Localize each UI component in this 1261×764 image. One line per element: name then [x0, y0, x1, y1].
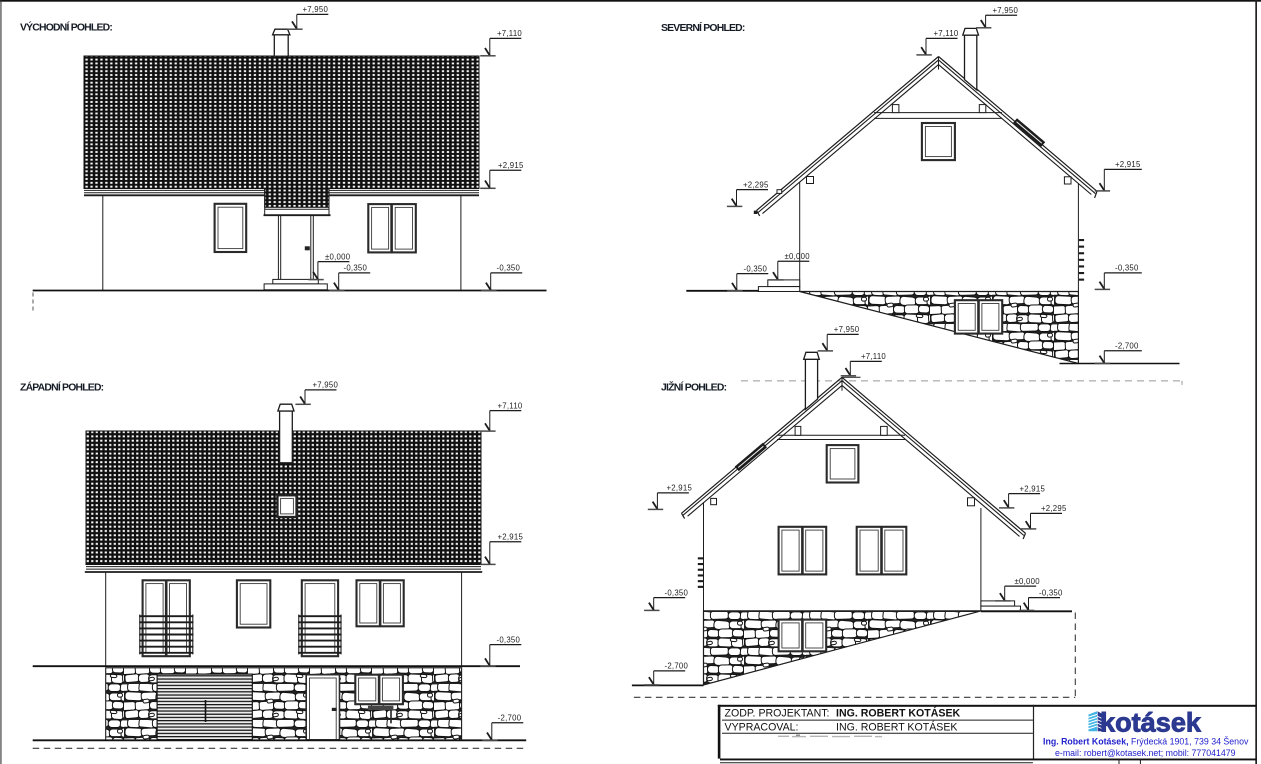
- svg-text:-0,350: -0,350: [497, 635, 521, 644]
- svg-text:+7,950: +7,950: [993, 6, 1019, 15]
- svg-text:+2,915: +2,915: [1115, 160, 1141, 169]
- svg-text:ING. ROBERT KOTÁSEK: ING. ROBERT KOTÁSEK: [836, 720, 957, 733]
- svg-text:-0,350: -0,350: [1039, 588, 1063, 597]
- svg-text:+2,915: +2,915: [667, 484, 693, 493]
- svg-text:±0,000: ±0,000: [785, 252, 811, 261]
- svg-text:-2,700: -2,700: [665, 662, 689, 671]
- svg-text:ZÁPADNÍ POHLED:: ZÁPADNÍ POHLED:: [20, 381, 104, 394]
- svg-text:+7,110: +7,110: [497, 29, 522, 38]
- svg-text:+7,110: +7,110: [861, 352, 886, 361]
- svg-text:-0,350: -0,350: [344, 264, 368, 273]
- svg-text:+7,950: +7,950: [303, 5, 329, 14]
- svg-text:+7,110: +7,110: [934, 29, 959, 38]
- svg-text:e-mail: robert@kotasek.net; mo: e-mail: robert@kotasek.net; mobil: 77704…: [1055, 748, 1236, 758]
- svg-text:+2,295: +2,295: [743, 180, 769, 189]
- svg-text:VYPRACOVAL:: VYPRACOVAL:: [725, 721, 799, 733]
- svg-text:+7,950: +7,950: [313, 381, 339, 390]
- svg-text:+7,110: +7,110: [498, 401, 523, 410]
- svg-text:-0,350: -0,350: [665, 588, 689, 597]
- svg-text:VÝCHODNÍ POHLED:: VÝCHODNÍ POHLED:: [20, 21, 112, 34]
- svg-text:±0,000: ±0,000: [325, 252, 351, 261]
- svg-text:-2,700: -2,700: [1115, 342, 1139, 351]
- svg-text:+2,915: +2,915: [1020, 484, 1046, 493]
- svg-text:+2,915: +2,915: [498, 161, 524, 170]
- svg-text:ING. ROBERT KOTÁSEK: ING. ROBERT KOTÁSEK: [836, 707, 961, 720]
- svg-text:SEVERNÍ POHLED:: SEVERNÍ POHLED:: [661, 21, 745, 34]
- svg-text:Ing. Robert Kotásek, Frýdecká: Ing. Robert Kotásek, Frýdecká 1901, 739 …: [1043, 736, 1249, 746]
- svg-text:+7,950: +7,950: [834, 325, 860, 334]
- svg-text:+2,295: +2,295: [1041, 504, 1067, 513]
- svg-text:+2,915: +2,915: [498, 533, 524, 542]
- svg-text:-0,350: -0,350: [497, 264, 521, 273]
- svg-text:ZODP. PROJEKTANT:: ZODP. PROJEKTANT:: [725, 708, 830, 720]
- svg-text:JIŽNÍ POHLED:: JIŽNÍ POHLED:: [661, 381, 727, 394]
- svg-text:±0,000: ±0,000: [1015, 577, 1041, 586]
- svg-text:-0,350: -0,350: [744, 264, 768, 273]
- svg-text:-2,700: -2,700: [498, 714, 522, 723]
- svg-text:kotásek: kotásek: [1100, 707, 1202, 737]
- svg-text:-0,350: -0,350: [1115, 264, 1139, 273]
